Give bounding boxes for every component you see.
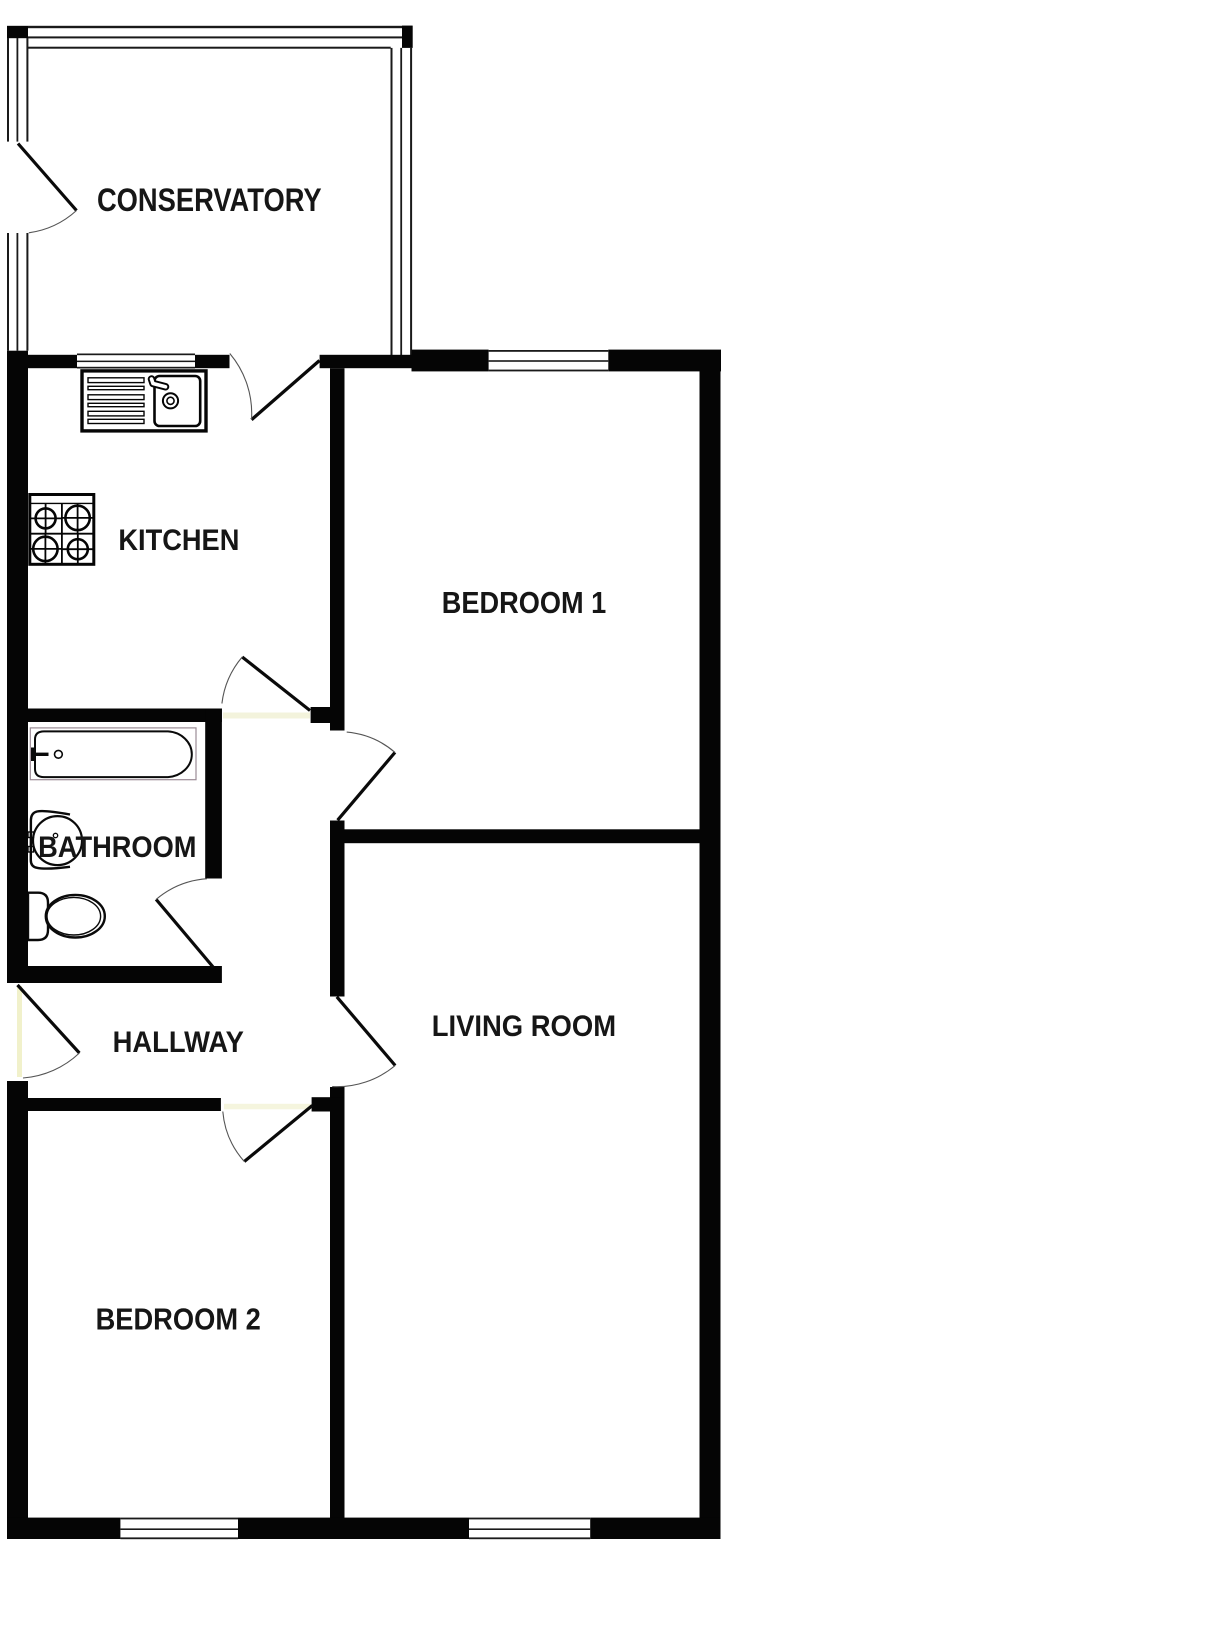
svg-text:BATHROOM: BATHROOM	[38, 831, 196, 864]
svg-text:BEDROOM 1: BEDROOM 1	[442, 585, 607, 620]
svg-text:HALLWAY: HALLWAY	[113, 1026, 244, 1059]
svg-text:LIVING ROOM: LIVING ROOM	[432, 1010, 616, 1043]
svg-text:CONSERVATORY: CONSERVATORY	[97, 182, 322, 218]
svg-text:KITCHEN: KITCHEN	[118, 524, 239, 557]
svg-text:BEDROOM 2: BEDROOM 2	[96, 1301, 261, 1336]
